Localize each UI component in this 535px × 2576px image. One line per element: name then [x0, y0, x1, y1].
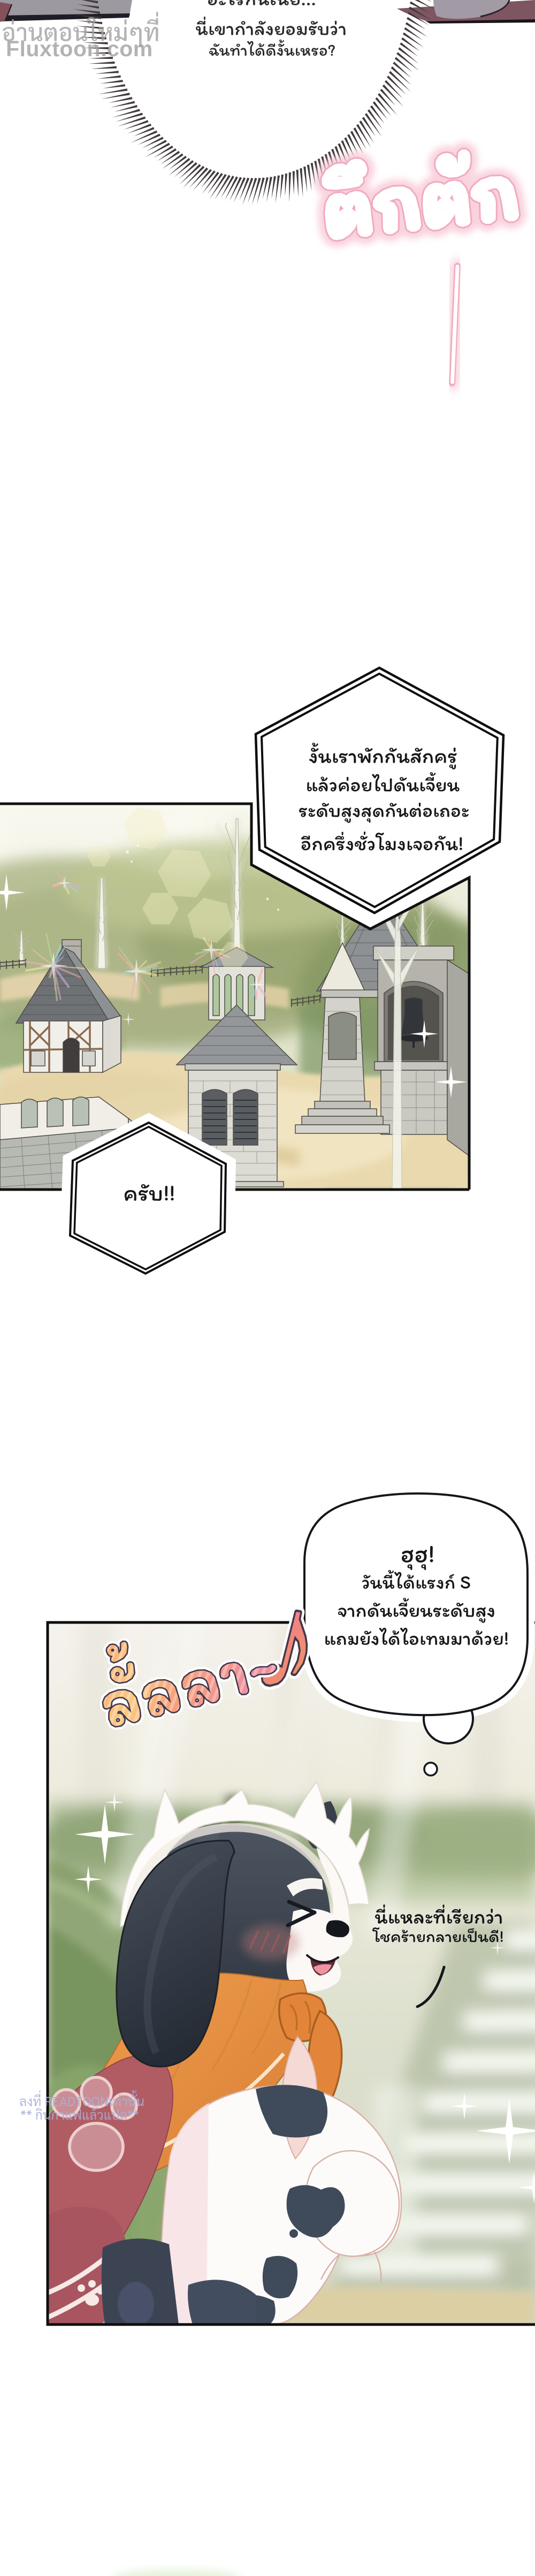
svg-text:Fluxtoon.com: Fluxtoon.com — [6, 36, 153, 61]
